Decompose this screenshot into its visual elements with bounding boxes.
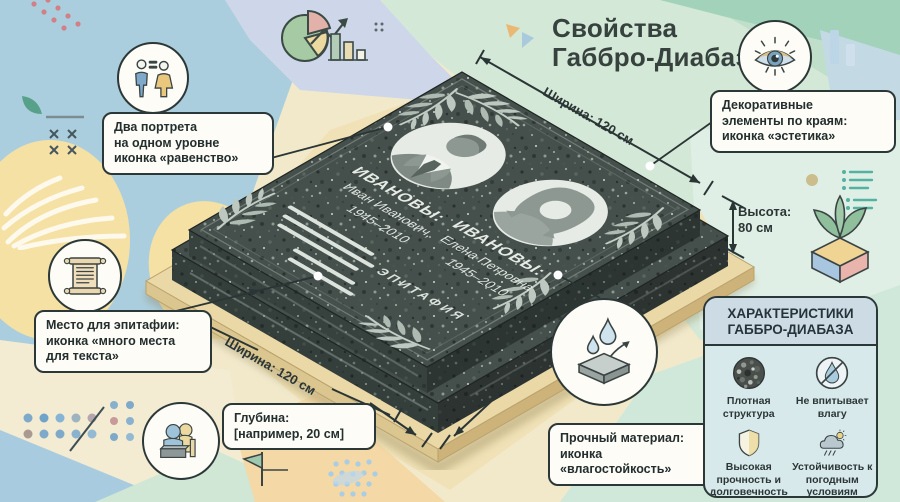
callout-portraits-line: на одном уровне (114, 136, 262, 152)
panel-item-dense-structure: Плотная структура (707, 350, 791, 424)
callout-depth-line: Глубина: (234, 411, 364, 427)
callout-material-line: «влагостойкость» (560, 462, 710, 478)
plant-cube-icon (812, 196, 868, 282)
scroll-icon (48, 239, 122, 313)
water-drops-slab-icon (550, 298, 658, 406)
equality-icon (117, 42, 189, 114)
dimension-value-height: 80 см (738, 220, 791, 236)
x-marks-pattern (50, 130, 76, 154)
callout-decor-line: элементы по краям: (722, 114, 884, 130)
callout-material-line: Прочный материал: (560, 431, 710, 447)
deco-right (798, 160, 898, 285)
callout-decor-line: иконка «эстетика» (722, 129, 884, 145)
panel-item-no-moisture: Не впитывает влагу (791, 350, 875, 424)
callout-decor: Декоративные элементы по краям: иконка «… (710, 90, 896, 153)
callout-epitaph-line: для текста» (46, 349, 200, 365)
callout-depth-line: [например, 20 см] (234, 427, 364, 443)
panel-item-weather: Устойчивость к погодным условиям (791, 424, 875, 498)
callout-epitaph-line: иконка «много места (46, 334, 200, 350)
pink-dots-pattern (31, 0, 80, 31)
panel-title-line-1: ХАРАКТЕРИСТИКИ (709, 306, 872, 322)
dimension-label-height: Высота: (738, 204, 791, 220)
shield-icon (729, 427, 769, 459)
vertical-bars-icon (822, 24, 868, 84)
infographic-canvas: ИВАНОВЫ: Иван Иванович, 1945–2010 ИВАНОВ… (0, 0, 900, 502)
monument-illustration: ИВАНОВЫ: Иван Иванович, 1945–2010 ИВАНОВ… (110, 30, 780, 470)
callout-decor-line: Декоративные (722, 98, 884, 114)
callout-portraits: Два портрета на одном уровне иконка «рав… (102, 112, 274, 175)
panel-item-label: Не впитывает влагу (791, 395, 875, 420)
panel-item-label: Плотная структура (707, 395, 791, 420)
callout-portraits-line: Два портрета (114, 120, 262, 136)
panel-title-line-2: ГАББРО-ДИАБАЗА (709, 322, 872, 338)
figures-monument-icon (142, 402, 220, 480)
eye-icon (738, 20, 812, 94)
callout-epitaph-line: Место для эпитафии: (46, 318, 200, 334)
callout-depth: Глубина: [например, 20 см] (222, 403, 376, 450)
callout-material: Прочный материал: иконка «влагостойкость… (548, 423, 722, 486)
panel-item-strength: Высокая прочность и долговечность (707, 424, 791, 498)
panel-item-label: Высокая прочность и долговечность (707, 461, 791, 498)
dense-structure-icon (729, 353, 769, 393)
callout-portraits-line: иконка «равенство» (114, 151, 262, 167)
characteristics-panel: ХАРАКТЕРИСТИКИ ГАББРО-ДИАБАЗА Плотная ст (703, 296, 878, 498)
panel-item-label: Устойчивость к погодным условиям (791, 461, 875, 498)
leaf-icon (22, 96, 42, 114)
no-moisture-icon (812, 353, 852, 393)
panel-title: ХАРАКТЕРИСТИКИ ГАББРО-ДИАБАЗА (705, 298, 876, 346)
callout-material-line: иконка (560, 447, 710, 463)
callout-epitaph: Место для эпитафии: иконка «много места … (34, 310, 212, 373)
weather-icon (812, 427, 852, 459)
list-lines-icon (850, 172, 876, 208)
